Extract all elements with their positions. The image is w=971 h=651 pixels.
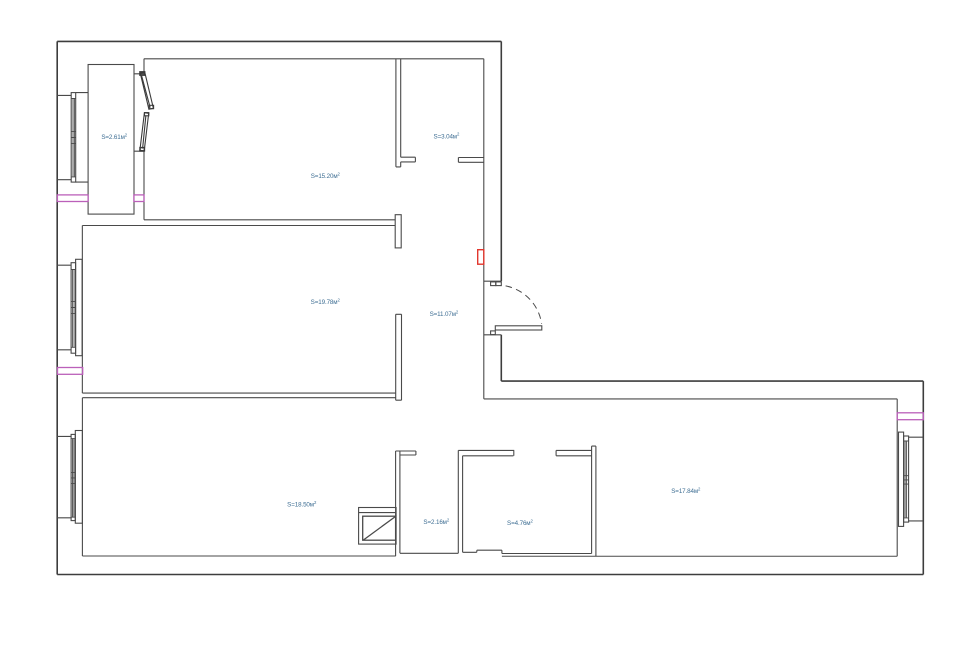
svg-text:S=3.04м2: S=3.04м2	[434, 132, 460, 141]
svg-text:S=2.16м2: S=2.16м2	[423, 518, 449, 527]
svg-text:S=2.61м2: S=2.61м2	[101, 133, 127, 142]
svg-text:S=4.76м2: S=4.76м2	[507, 519, 533, 528]
svg-text:S=11.07м2: S=11.07м2	[430, 310, 459, 319]
svg-text:S=17.84м2: S=17.84м2	[671, 487, 701, 496]
svg-text:S=18.50м2: S=18.50м2	[287, 500, 317, 509]
svg-text:S=15.20м2: S=15.20м2	[311, 171, 341, 180]
svg-text:S=19.78м2: S=19.78м2	[311, 298, 341, 307]
